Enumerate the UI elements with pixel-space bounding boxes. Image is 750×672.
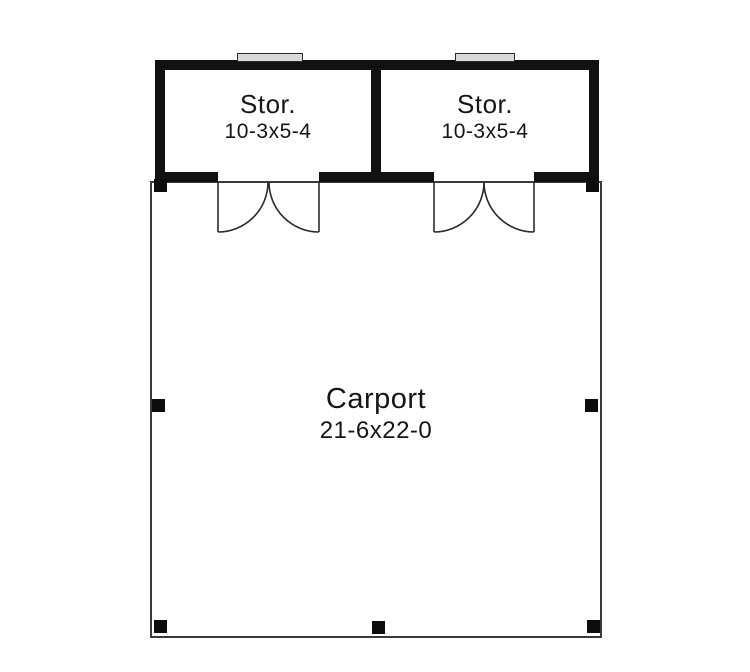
post-bottom-left <box>154 620 167 633</box>
post-bottom-right <box>587 620 600 633</box>
storage-right-wall <box>589 60 599 182</box>
post-top-left <box>154 179 167 192</box>
storage-right-name: Stor. <box>381 89 589 119</box>
storage-right-label: Stor. 10-3x5-4 <box>381 89 589 144</box>
storage-left-wall <box>155 60 165 182</box>
storage-right-dimensions: 10-3x5-4 <box>381 119 589 144</box>
storage-divider-wall <box>371 68 381 182</box>
carport-name: Carport <box>150 382 602 416</box>
post-bottom-center <box>372 621 385 634</box>
storage-right-window-icon <box>455 53 515 62</box>
floor-plan-canvas: Stor. 10-3x5-4 Stor. 10-3x5-4 Carport 21… <box>0 0 750 672</box>
carport-label: Carport 21-6x22-0 <box>150 382 602 446</box>
storage-left-name: Stor. <box>165 89 371 119</box>
storage-left-dimensions: 10-3x5-4 <box>165 119 371 144</box>
storage-left-window-icon <box>237 53 303 62</box>
post-top-right <box>586 179 599 192</box>
storage-bottom-wall-mid <box>319 172 434 182</box>
carport-dimensions: 21-6x22-0 <box>150 416 602 446</box>
storage-left-label: Stor. 10-3x5-4 <box>165 89 371 144</box>
